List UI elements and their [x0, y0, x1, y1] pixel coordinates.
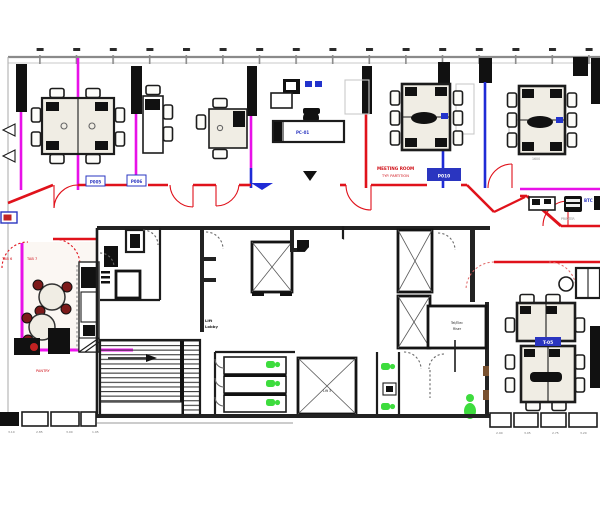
door-frame	[483, 390, 489, 400]
lift-shaft	[398, 296, 430, 348]
column-block	[590, 326, 600, 388]
toilet-block	[215, 352, 295, 415]
svg-text:1.95: 1.95	[92, 430, 99, 434]
partition-note: MEETING ROOM	[377, 166, 414, 171]
toilet-icon	[266, 380, 280, 387]
door-tag: P006	[131, 179, 142, 184]
toilet-icon	[266, 399, 280, 406]
riser-label: Tel/Elec	[450, 321, 463, 325]
reception-area: PC-01	[271, 79, 344, 142]
vestibule-marker	[251, 183, 273, 190]
riser-shaft	[116, 271, 140, 298]
equipment-tag: BTC	[584, 198, 593, 203]
service-core: Tel/Elec Riser Lift Lobby	[97, 226, 490, 418]
toilet-icon	[266, 361, 280, 368]
lift-shaft	[398, 230, 432, 292]
door-arc	[206, 232, 223, 249]
chair-marker	[30, 343, 38, 351]
door-tag: P005	[90, 180, 101, 185]
room-tag: TAB 6	[1, 257, 13, 261]
desk-c	[197, 99, 248, 159]
lift-label: Lift 3	[323, 389, 331, 393]
facade-tick-marks	[14, 46, 598, 52]
accessible-person-icon	[466, 394, 474, 402]
riser-room: Tel/Elec Riser	[428, 306, 486, 348]
svg-text:3.05: 3.05	[524, 431, 531, 435]
dimension-text: 3.10 2.85 3.00 1.95 2.90 3.05 2.75 3.20	[8, 430, 587, 435]
meeting-table-d	[391, 84, 463, 150]
column-block	[48, 328, 70, 354]
door-frame	[483, 366, 489, 376]
svg-text:3.20: 3.20	[580, 431, 587, 435]
toilet-block-right	[377, 352, 399, 416]
desk-b	[143, 86, 173, 154]
lift-shaft	[252, 242, 292, 296]
accessible-wc	[404, 340, 489, 419]
meeting-table-e: 1600	[508, 86, 577, 161]
svg-text:2.75: 2.75	[552, 431, 559, 435]
counter-tag: PC-01	[296, 130, 309, 135]
svg-text:3.00: 3.00	[66, 430, 73, 434]
toilet-icon	[381, 403, 395, 410]
entry-arrow-icon	[303, 171, 317, 181]
pantry-label: PANTRY	[36, 369, 51, 373]
door-tag: P010	[438, 174, 450, 180]
partition-note: TYP. PARTITION	[381, 174, 409, 178]
toilet-icon	[381, 363, 395, 370]
room-tag: TAB 7	[26, 257, 37, 261]
door-arc	[438, 233, 455, 250]
lift-shaft: Lift 3	[298, 358, 356, 414]
white-blob-artifact	[294, 237, 370, 337]
door-arc	[215, 359, 224, 368]
svg-text:3.10: 3.10	[8, 430, 15, 434]
lift-lobby-label: Lobby	[205, 324, 218, 329]
table-tag: T-05	[543, 340, 553, 346]
printer-label: PRINTER	[561, 217, 575, 221]
door-arc	[215, 397, 224, 406]
floor-plan-canvas: PC-01 1600	[0, 0, 600, 525]
bottom-facade: 3.10 2.85 3.00 1.95 2.90 3.05 2.75 3.20	[0, 412, 597, 435]
table-dim-label: 1600	[532, 157, 540, 161]
electrical-cabinet	[104, 246, 118, 267]
lift-lobby-label: Lift	[205, 318, 212, 323]
monitor-icon	[315, 81, 322, 87]
left-edge-markers	[1, 124, 17, 223]
facade-mullions	[14, 55, 598, 64]
riser-label: Riser	[453, 327, 462, 331]
door-arc	[215, 378, 224, 387]
bench-table-group: T-05	[506, 295, 585, 411]
monitor-icon	[305, 81, 312, 87]
door-arc	[429, 354, 444, 369]
door-arc	[404, 352, 421, 369]
floor-plan-drawing: PC-01 1600	[0, 0, 600, 525]
door-arc	[143, 230, 158, 245]
task-chair	[559, 277, 573, 291]
svg-text:2.85: 2.85	[36, 430, 43, 434]
svg-text:2.90: 2.90	[496, 431, 503, 435]
stair	[100, 340, 200, 415]
meeting-table-a	[32, 89, 125, 164]
demising-wall: P005 P006 P010 MEETING ROOM TYP. PARTITI…	[8, 164, 600, 212]
